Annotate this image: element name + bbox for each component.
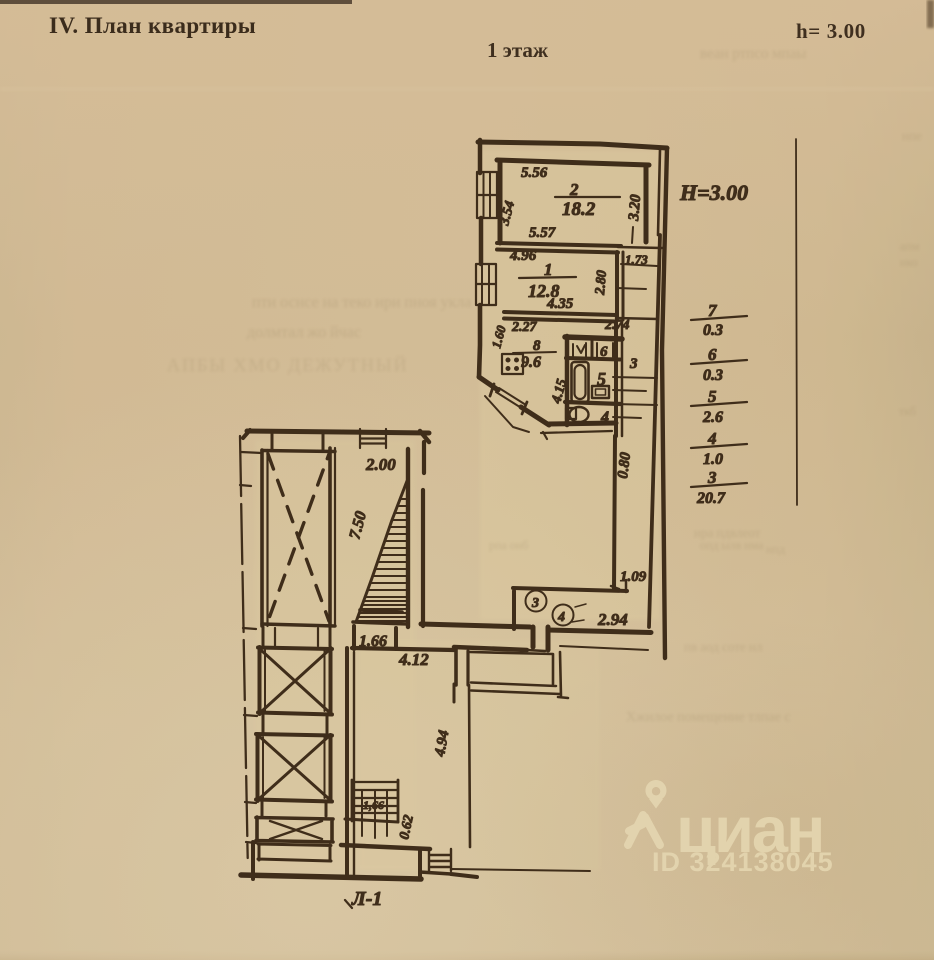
svg-text:ID 324138045: ID 324138045 [652, 847, 834, 877]
svg-text:4: 4 [707, 429, 717, 448]
svg-text:4: 4 [557, 610, 565, 625]
svg-text:веан ртпсо мпаы: веан ртпсо мпаы [700, 46, 806, 62]
svg-text:6: 6 [600, 344, 608, 360]
svg-text:4.96: 4.96 [509, 248, 537, 264]
svg-text:Хжилое помещение тлпае с: Хжилое помещение тлпае с [626, 710, 791, 725]
svg-text:АПБЫ ХМО ДЕЖУТНЫЙ: АПБЫ ХМО ДЕЖУТНЫЙ [167, 355, 409, 375]
svg-text:3.20: 3.20 [626, 193, 644, 222]
svg-text:3: 3 [531, 596, 539, 611]
svg-text:5.57: 5.57 [529, 225, 556, 241]
svg-text:4.35: 4.35 [546, 296, 574, 312]
svg-text:1,66: 1,66 [363, 798, 384, 812]
svg-text:0.3: 0.3 [703, 367, 723, 384]
svg-text:долмтал жо йчас: долмтал жо йчас [247, 324, 361, 341]
svg-text:ткб: ткб [899, 404, 916, 418]
svg-text:опд ылв нма: опд ылв нма [700, 538, 764, 552]
svg-text:H=3.00: H=3.00 [679, 180, 748, 205]
svg-text:2.94: 2.94 [597, 610, 628, 629]
svg-text:4: 4 [600, 409, 609, 426]
svg-text:IV. План квартиры: IV. План квартиры [49, 13, 256, 38]
svg-text:2.80: 2.80 [593, 270, 610, 297]
svg-text:1.0: 1.0 [703, 451, 723, 468]
svg-text:20.7: 20.7 [696, 490, 726, 507]
svg-text:5.56: 5.56 [521, 165, 548, 181]
svg-text:0.3: 0.3 [703, 322, 723, 339]
svg-text:рпа онб: рпа онб [489, 538, 528, 552]
svg-text:Л-1: Л-1 [351, 888, 382, 910]
svg-text:1.73: 1.73 [625, 252, 648, 267]
svg-text:пв аод соте нл: пв аод соте нл [684, 639, 763, 654]
svg-text:2.27: 2.27 [511, 320, 538, 335]
svg-text:нко: нко [900, 255, 918, 269]
svg-text:2.00: 2.00 [365, 455, 396, 474]
svg-text:18.2: 18.2 [562, 199, 596, 220]
svg-text:0.80: 0.80 [615, 451, 634, 480]
svg-text:пти оснсе на теко ири пноя укл: пти оснсе на теко ири пноя укла [252, 294, 471, 311]
svg-text:h= 3.00: h= 3.00 [796, 19, 866, 43]
svg-text:2.6: 2.6 [702, 409, 723, 426]
svg-text:2.74: 2.74 [604, 318, 630, 333]
svg-text:нпд: нпд [766, 542, 785, 556]
svg-text:1.09: 1.09 [620, 569, 647, 585]
svg-text:3: 3 [629, 356, 638, 372]
svg-text:нпе: нпе [902, 128, 922, 143]
svg-text:апм: апм [900, 239, 920, 253]
svg-text:4.12: 4.12 [398, 650, 429, 669]
svg-text:1: 1 [544, 260, 553, 279]
svg-text:1 этаж: 1 этаж [487, 38, 549, 62]
